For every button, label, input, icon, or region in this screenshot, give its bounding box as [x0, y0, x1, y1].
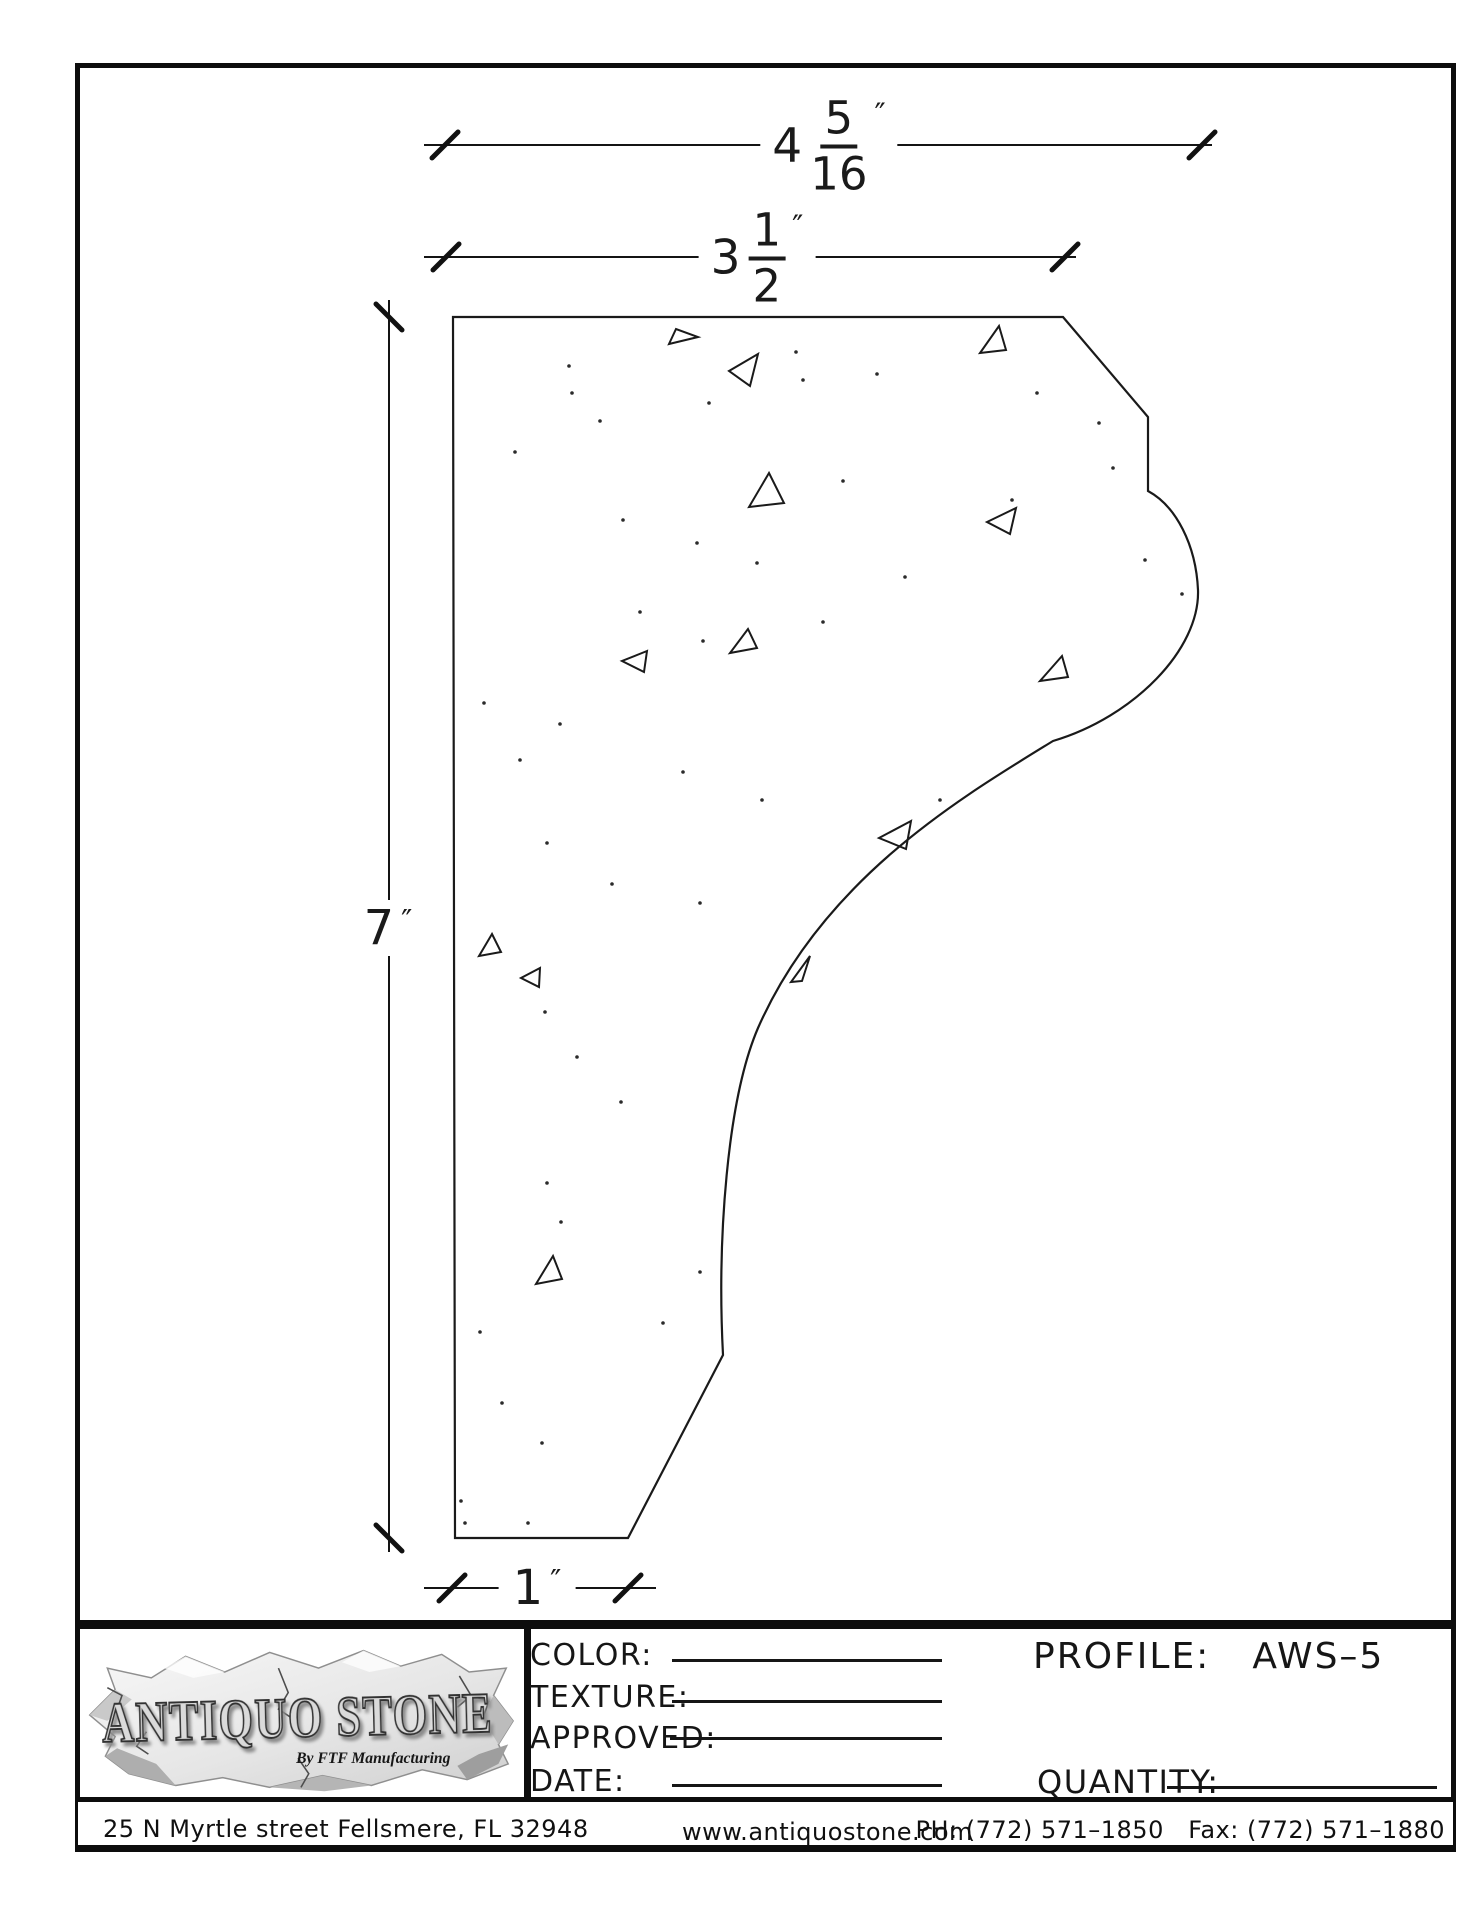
- titleblock-top-border: [75, 1620, 1456, 1629]
- quantity-line: [1167, 1786, 1437, 1789]
- logo-byline-text: By FTF Manufacturing: [295, 1750, 450, 1767]
- dim-overall-width-label: 4 5 16 ″: [760, 94, 897, 199]
- field-line-approved: [670, 1737, 942, 1740]
- field-line-date: [672, 1784, 942, 1787]
- inch-mark: ″: [550, 1564, 561, 1599]
- dim-top-whole: 3: [711, 235, 741, 282]
- company-logo: ANTIQUO STONE By FTF Manufacturing: [78, 1638, 518, 1796]
- profile-outline: [453, 317, 1198, 1538]
- drawing-sheet: 4 5 16 ″ 3 1 2 ″ 7 ″ 1 ″: [0, 0, 1484, 1920]
- field-label-date: DATE:: [530, 1764, 626, 1799]
- field-label-texture: TEXTURE:: [530, 1680, 690, 1715]
- dim-height-label: 7 ″: [350, 900, 427, 956]
- field-line-color: [672, 1659, 942, 1662]
- inch-mark: ″: [792, 210, 803, 245]
- dim-top-fraction: 1 2: [749, 208, 786, 309]
- inch-mark: ″: [874, 98, 885, 133]
- dim-overall-fraction: 5 16: [810, 96, 867, 197]
- dim-bottom-width-label: 1 ″: [499, 1560, 576, 1616]
- footer-phone: PH: (772) 571–1850 Fax: (772) 571–1880: [916, 1816, 1445, 1844]
- profile-value: AWS–5: [1252, 1636, 1384, 1677]
- logo-brand-text: ANTIQUO STONE: [101, 1681, 494, 1754]
- profile-row: PROFILE: AWS–5: [1033, 1636, 1384, 1677]
- field-label-color: COLOR:: [530, 1638, 653, 1673]
- inch-mark: ″: [401, 904, 412, 939]
- field-line-texture: [672, 1700, 942, 1703]
- footer-address: 25 N Myrtle street Fellsmere, FL 32948: [103, 1815, 589, 1843]
- profile-label: PROFILE:: [1033, 1636, 1210, 1677]
- dim-overall-whole: 4: [772, 123, 802, 170]
- quantity-label: QUANTITY:: [1037, 1763, 1220, 1801]
- dim-top-width-label: 3 1 2 ″: [699, 206, 816, 311]
